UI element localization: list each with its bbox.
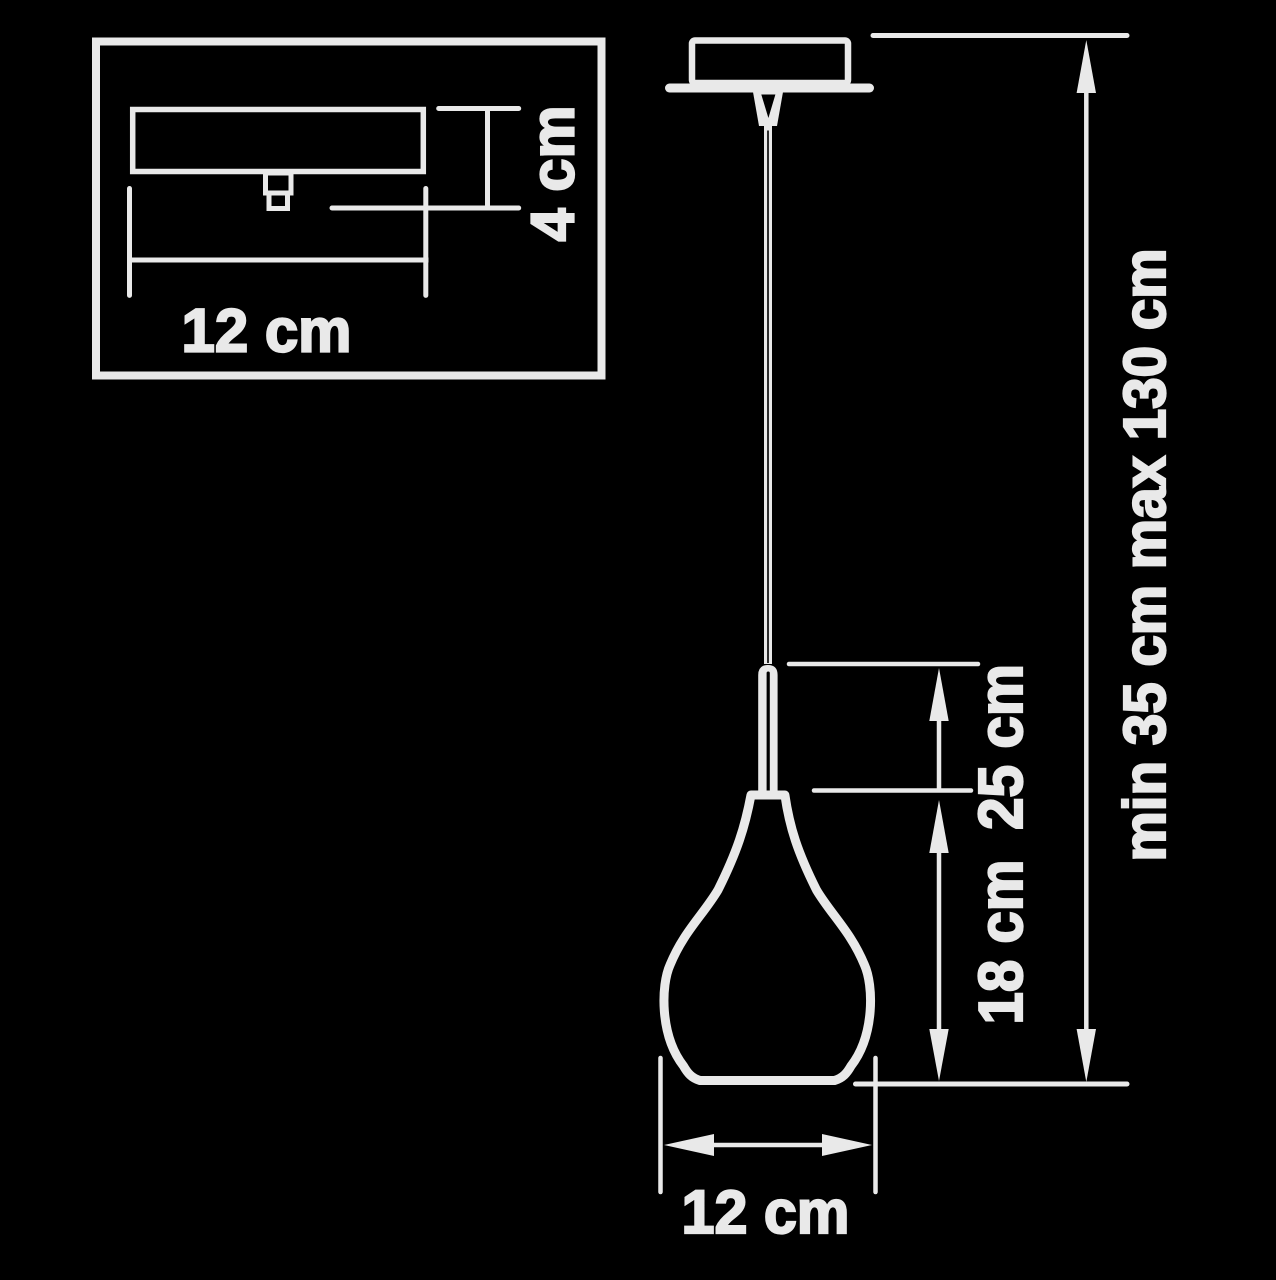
- svg-text:18 cm: 18 cm: [967, 860, 1036, 1025]
- svg-text:12 cm: 12 cm: [182, 297, 352, 366]
- svg-text:4 cm: 4 cm: [519, 106, 587, 242]
- svg-text:12 cm: 12 cm: [682, 1178, 850, 1247]
- svg-text:25 cm: 25 cm: [967, 664, 1036, 830]
- svg-text:min 35 cm max 130 cm: min 35 cm max 130 cm: [1112, 249, 1178, 862]
